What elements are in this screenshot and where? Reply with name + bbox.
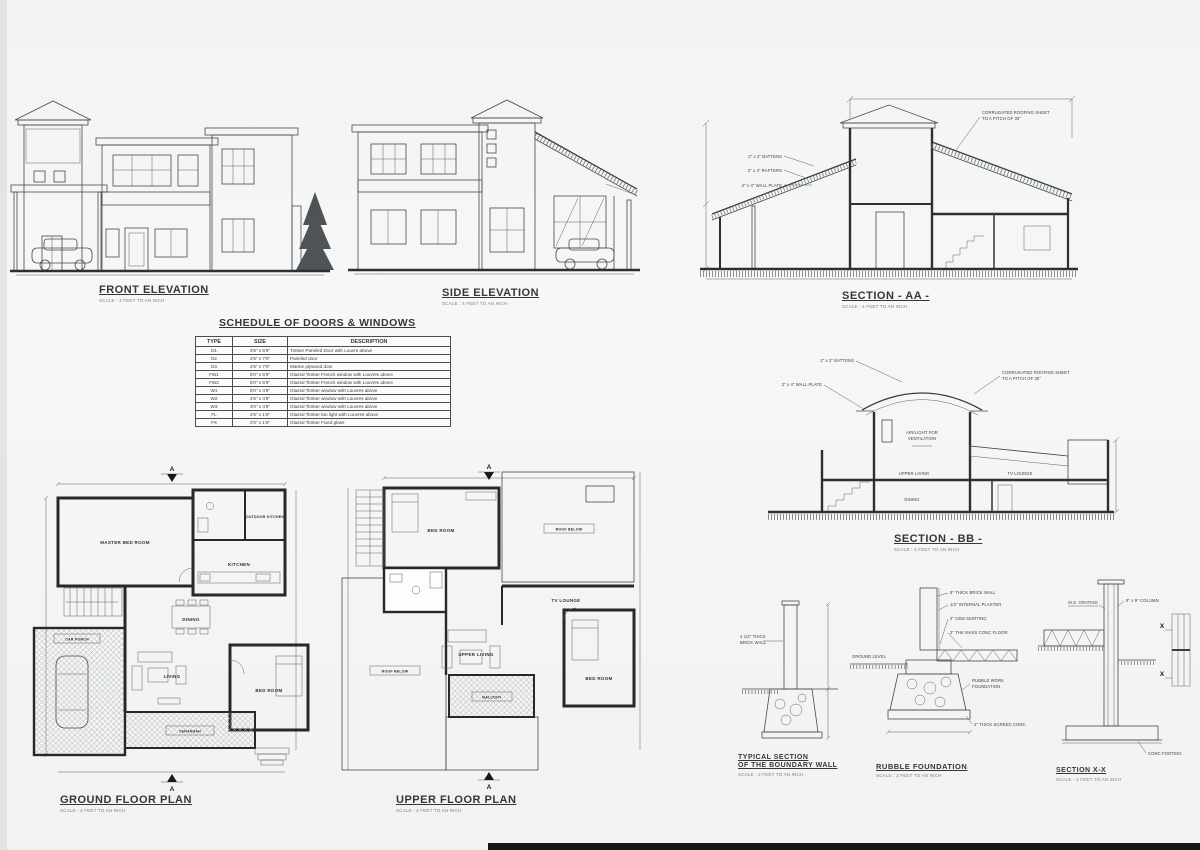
- ground-plan-caption: GROUND FLOOR PLAN SCALE : 4 FEET TO AN I…: [60, 794, 192, 813]
- section-xx-caption: SECTION X-X SCALE : 2 FEET TO AN INCH: [1056, 767, 1122, 782]
- right-block: [205, 128, 301, 271]
- room-label: ROOF BELOW: [382, 670, 409, 674]
- rubble-foundation-caption: RUBBLE FOUNDATION SCALE : 2 FEET TO AN I…: [876, 762, 967, 778]
- room-label: LIVING: [164, 674, 181, 679]
- rubble-foundation-title: RUBBLE FOUNDATION: [876, 762, 967, 771]
- room-label: TV LOUNGE: [1007, 471, 1032, 476]
- schedule-cell-description: Glazed Timber window with Louvres above: [288, 403, 451, 411]
- schedule-cell-description: Glazed Timber Fixed glass: [288, 419, 451, 427]
- front-elevation-caption: FRONT ELEVATION SCALE : 4 FEET TO AN INC…: [99, 284, 209, 303]
- annotation: M.S. GRATING: [1068, 600, 1098, 605]
- room-label: TV LOUNGE: [552, 598, 581, 603]
- annotations: M.S. GRATING 9" x 9" COLUMN CONC FOOTING…: [1068, 598, 1182, 756]
- annotation: 2" x 4" RAFTERS: [748, 168, 782, 173]
- section-marker-bottom: A: [161, 774, 183, 793]
- annotations: 2" x 2" BATTENS 2" x 4" WALL PLATE CORRU…: [782, 358, 1070, 408]
- room-label: UPPER LIVING: [458, 652, 494, 657]
- section-bb-title: SECTION - BB -: [894, 533, 982, 545]
- entry-steps: [255, 748, 289, 765]
- schedule-cell-description: Glazed Timber French window with Louvres…: [288, 379, 451, 387]
- annotation: 3" THK MASS CONC FLOOR: [950, 630, 1008, 635]
- schedule-row: W2 4'6" x 4'6" Glazed Timber window with…: [196, 395, 451, 403]
- annotation: TO A PITCH OF 30°: [982, 116, 1021, 121]
- section-bb-caption: SECTION - BB - SCALE : 4 FEET TO AN INCH: [894, 533, 982, 552]
- left-tower: [15, 101, 91, 271]
- section-aa-scale: SCALE : 4 FEET TO AN INCH: [842, 304, 929, 309]
- boundary-wall-drawing: 4 1/2" THICK BRICK WALL: [736, 592, 846, 757]
- schedule-header-description: DESCRIPTION: [288, 337, 451, 347]
- section-bb-panel: AIR/LIGHT FOR VENTILATION 2" x 2" BATTEN…: [762, 322, 1122, 532]
- annotations: 2" x 2" BATTENS 2" x 4" RAFTERS 2" x 4" …: [742, 110, 1050, 188]
- room-label: ROOF BELOW: [556, 528, 583, 532]
- schedule-cell-description: Glazed Timber fan light with Louvres abo…: [288, 411, 451, 419]
- upper-plan-title: UPPER FLOOR PLAN: [396, 794, 516, 806]
- tree: [296, 192, 334, 272]
- room-label: CAR PORCH: [65, 638, 89, 642]
- schedule-title: SCHEDULE OF DOORS & WINDOWS: [219, 317, 416, 329]
- schedule-cell-size: 3'6" x 6'6": [233, 347, 288, 355]
- stair: [356, 490, 384, 566]
- room-label: OUTDOOR KITCHEN: [246, 515, 285, 519]
- left-wing: [712, 159, 856, 269]
- boundary-wall-title-2: OF THE BOUNDARY WALL: [738, 762, 837, 770]
- room-label: DINING: [904, 497, 919, 502]
- schedule-cell-type: D3: [196, 363, 233, 371]
- right-wing: [932, 142, 1072, 269]
- schedule-cell-description: Glazed Timber window with Louvres above: [288, 387, 451, 395]
- room-label: BED ROOM: [255, 688, 282, 693]
- annotation: 9" x 9" COLUMN: [1126, 598, 1159, 603]
- ground-floor-plan-drawing: A: [20, 460, 320, 795]
- upper-plan-caption: UPPER FLOOR PLAN SCALE : 4 FEET TO AN IN…: [396, 794, 516, 813]
- annotation: AIR/LIGHT FOR: [906, 430, 938, 435]
- section-marker-letter: A: [170, 786, 175, 793]
- schedule-header-size: SIZE: [233, 337, 288, 347]
- rubble-foundation-drawing: 9" THICK BRICK WALL 1/2" INTERNAL PLASTE…: [842, 580, 1022, 760]
- upper-floor-plan-drawing: A: [334, 460, 644, 795]
- annotation: CORRUGATED ROOFING SHEET: [982, 110, 1050, 115]
- section-marker-top: A: [478, 464, 500, 480]
- schedule-cell-type: FW1: [196, 371, 233, 379]
- room-label: MASTER BED ROOM: [100, 540, 150, 545]
- schedule-cell-description: Paneled door: [288, 355, 451, 363]
- drawing-sheet: FRONT ELEVATION SCALE : 4 FEET TO AN INC…: [0, 0, 1200, 850]
- front-elevation-drawing: [6, 88, 336, 288]
- room-label: BED ROOM: [427, 528, 454, 533]
- boundary-wall-title-1: TYPICAL SECTION: [738, 754, 837, 762]
- room-label: DINING: [182, 617, 200, 622]
- schedule-cell-type: W2: [196, 395, 233, 403]
- schedule-cell-type: D2: [196, 355, 233, 363]
- section-aa-drawing: 2" x 2" BATTENS 2" x 4" RAFTERS 2" x 4" …: [694, 86, 1084, 291]
- schedule-cell-description: Timber Paneled Door with Louvre above: [288, 347, 451, 355]
- schedule-cell-description: Glazed Timber window with Louvres above: [288, 395, 451, 403]
- annotation: 2" THICK SCREED CONC: [974, 722, 1026, 727]
- room-label: BED ROOM: [585, 676, 612, 681]
- schedule-row: FW2 5'0" x 6'6" Glazed Timber French win…: [196, 379, 451, 387]
- schedule-row: D3 2'6" x 7'0" Marine plywood door: [196, 363, 451, 371]
- schedule-cell-size: 2'6" x 7'0": [233, 355, 288, 363]
- section-cut-letter: X: [1160, 623, 1165, 630]
- section-cut-letter: X: [1160, 671, 1165, 678]
- room-label: BALCONY: [482, 696, 502, 700]
- boundary-wall-panel: 4 1/2" THICK BRICK WALL: [736, 592, 846, 757]
- mini-elevation: [1172, 614, 1190, 686]
- section-xx-panel: M.S. GRATING 9" x 9" COLUMN CONC FOOTING…: [1028, 574, 1198, 764]
- doors-windows-schedule: TYPE SIZE DESCRIPTION D1 3'6" x 6'6" Tim…: [195, 336, 451, 427]
- side-elevation-title: SIDE ELEVATION: [442, 287, 539, 299]
- section-aa-panel: 2" x 2" BATTENS 2" x 4" RAFTERS 2" x 4" …: [694, 86, 1084, 291]
- annotation: 2" x 4" WALL PLATE: [782, 382, 822, 387]
- annotation: FOUNDATION: [972, 684, 1000, 689]
- annotation: VENTILATION: [908, 436, 936, 441]
- section-bb-scale: SCALE : 4 FEET TO AN INCH: [894, 547, 982, 552]
- schedule-cell-size: 4'6" x 4'6": [233, 395, 288, 403]
- side-elevation-caption: SIDE ELEVATION SCALE : 4 FEET TO AN INCH: [442, 287, 539, 306]
- annotation: 9" THICK BRICK WALL: [950, 590, 996, 595]
- annotation: GROUND LEVEL: [852, 654, 887, 659]
- schedule-row: D1 3'6" x 6'6" Timber Paneled Door with …: [196, 347, 451, 355]
- schedule-cell-type: FX: [196, 419, 233, 427]
- schedule-header-type: TYPE: [196, 337, 233, 347]
- section-marker-letter: A: [487, 464, 492, 471]
- boundary-wall-scale: SCALE : 2 FEET TO AN INCH: [738, 772, 837, 777]
- schedule-cell-size: 2'6" x 7'0": [233, 363, 288, 371]
- schedule-header-row: TYPE SIZE DESCRIPTION: [196, 337, 451, 347]
- schedule-cell-type: FW2: [196, 379, 233, 387]
- side-elevation-drawing: [344, 92, 644, 287]
- carport: [11, 185, 107, 271]
- annotation: BRICK WALL: [740, 640, 767, 645]
- stair: [64, 588, 122, 616]
- schedule-row: FL 2'6" x 1'6" Glazed Timber fan light w…: [196, 411, 451, 419]
- section-marker-letter: A: [170, 466, 175, 473]
- annotation: 2" x 4" WALL PLATE: [742, 183, 782, 188]
- sloped-roof-wing: [535, 132, 637, 270]
- upper-plan-scale: SCALE : 4 FEET TO AN INCH: [396, 808, 516, 813]
- schedule-row: D2 2'6" x 7'0" Paneled door: [196, 355, 451, 363]
- tower-section: [840, 105, 938, 269]
- front-elevation-scale: SCALE : 4 FEET TO AN INCH: [99, 298, 209, 303]
- section-bb-drawing: AIR/LIGHT FOR VENTILATION 2" x 2" BATTEN…: [762, 322, 1122, 532]
- schedule-cell-size: 2'6" x 1'6": [233, 411, 288, 419]
- annotation: 2" x 2" BATTENS: [748, 154, 782, 159]
- section-xx-title: SECTION X-X: [1056, 767, 1122, 775]
- schedule-row: W3 3'0" x 4'6" Glazed Timber window with…: [196, 403, 451, 411]
- side-elevation-scale: SCALE : 4 FEET TO AN INCH: [442, 301, 539, 306]
- side-elevation-panel: [344, 92, 644, 287]
- upper-floor-plan-panel: A: [334, 460, 644, 795]
- schedule-cell-size: 2'0" x 1'6": [233, 419, 288, 427]
- room-label: VERANDAH: [179, 730, 201, 734]
- section-marker-letter: A: [487, 784, 492, 791]
- ground-plan-title: GROUND FLOOR PLAN: [60, 794, 192, 806]
- ground-floor-plan-panel: A: [20, 460, 320, 795]
- room-label: KITCHEN: [228, 562, 250, 567]
- schedule-cell-size: 3'0" x 4'6": [233, 403, 288, 411]
- schedule-cell-size: 5'0" x 6'6": [233, 379, 288, 387]
- annotation: CORRUGATED ROOFING SHEET: [1002, 370, 1070, 375]
- front-elevation-panel: [6, 88, 336, 288]
- tower-section: AIR/LIGHT FOR VENTILATION: [856, 393, 988, 512]
- schedule-cell-type: FL: [196, 411, 233, 419]
- schedule-row: W1 6'0" x 4'6" Glazed Timber window with…: [196, 387, 451, 395]
- front-elevation-title: FRONT ELEVATION: [99, 284, 209, 296]
- schedule-cell-type: W1: [196, 387, 233, 395]
- schedule-cell-description: Marine plywood door: [288, 363, 451, 371]
- scan-bottom-bar: [488, 843, 1200, 850]
- walls: [384, 488, 634, 717]
- schedule-caption: SCHEDULE OF DOORS & WINDOWS: [219, 317, 416, 329]
- annotation: 2" CEM SKIRTING: [950, 616, 987, 621]
- section-xx-scale: SCALE : 2 FEET TO AN INCH: [1056, 777, 1122, 782]
- section-aa-caption: SECTION - AA - SCALE : 4 FEET TO AN INCH: [842, 290, 929, 309]
- annotation: 2" x 2" BATTENS: [820, 358, 854, 363]
- schedule-cell-size: 6'0" x 6'6": [233, 371, 288, 379]
- schedule-row: FX 2'0" x 1'6" Glazed Timber Fixed glass: [196, 419, 451, 427]
- boundary-wall-caption: TYPICAL SECTION OF THE BOUNDARY WALL SCA…: [738, 754, 837, 777]
- schedule-cell-type: W3: [196, 403, 233, 411]
- main-block: [96, 138, 218, 271]
- schedule-cell-size: 6'0" x 4'6": [233, 387, 288, 395]
- annotation: RUBBLE WORK: [972, 678, 1004, 683]
- schedule-row: FW1 6'0" x 6'6" Glazed Timber French win…: [196, 371, 451, 379]
- walkway-roof: [970, 446, 1068, 466]
- schedule-cell-description: Glazed Timber French window with Louvres…: [288, 371, 451, 379]
- annotation: CONC FOOTING: [1148, 751, 1182, 756]
- room-label: UPPER LIVING: [899, 471, 930, 476]
- left-block: [352, 125, 488, 270]
- annotation: 4 1/2" THICK: [740, 634, 766, 639]
- section-aa-title: SECTION - AA -: [842, 290, 929, 302]
- rubble-foundation-scale: SCALE : 2 FEET TO AN INCH: [876, 773, 967, 778]
- section-marker-top: A: [161, 466, 183, 482]
- room-labels: UPPER LIVING TV LOUNGE DINING: [899, 471, 1033, 502]
- ground-plan-scale: SCALE : 4 FEET TO AN INCH: [60, 808, 192, 813]
- rubble-foundation-panel: 9" THICK BRICK WALL 1/2" INTERNAL PLASTE…: [842, 580, 1022, 760]
- section-marker-bottom: A: [478, 772, 500, 791]
- roof-areas: [342, 472, 634, 770]
- annotation: 1/2" INTERNAL PLASTER: [950, 602, 1001, 607]
- walls: [34, 490, 308, 755]
- schedule-cell-type: D1: [196, 347, 233, 355]
- section-xx-drawing: M.S. GRATING 9" x 9" COLUMN CONC FOOTING…: [1028, 574, 1198, 764]
- annotation: TO A PITCH OF 30°: [1002, 376, 1041, 381]
